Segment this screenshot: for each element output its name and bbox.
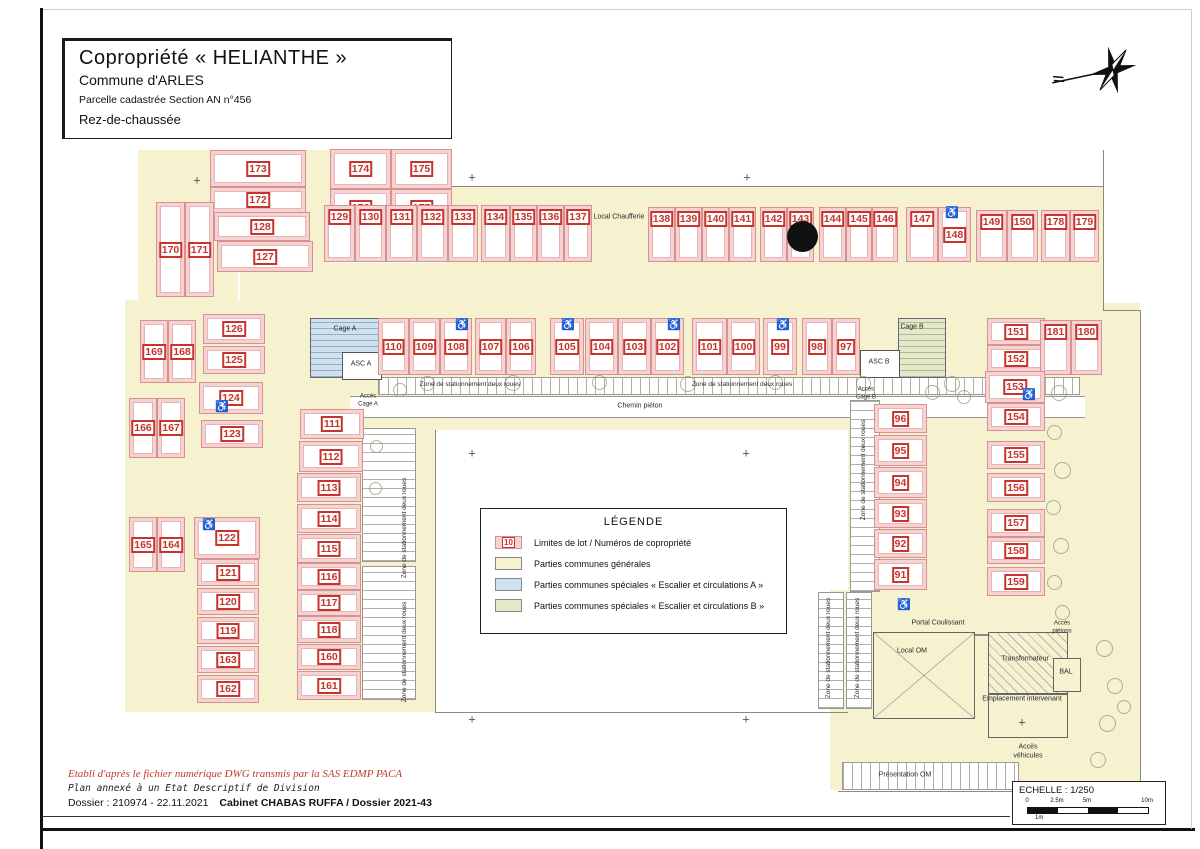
tree-symbol bbox=[1090, 752, 1106, 768]
lot-number-107: 107 bbox=[479, 339, 503, 355]
lot-number-148: 148 bbox=[943, 227, 967, 243]
lot-127: 127 bbox=[217, 241, 313, 272]
lot-146: 146 bbox=[872, 207, 898, 262]
lot-number-119: 119 bbox=[217, 623, 240, 639]
lot-162: 162 bbox=[197, 675, 259, 703]
lot-number-114: 114 bbox=[318, 511, 341, 527]
lot-135: 135 bbox=[510, 205, 537, 262]
lot-number-159: 159 bbox=[1004, 574, 1028, 590]
boundary-line bbox=[445, 186, 1103, 187]
lot-168: 168 bbox=[168, 320, 196, 383]
lot-121: 121 bbox=[197, 559, 259, 586]
tree-symbol bbox=[1047, 425, 1062, 440]
lot-178: 178 bbox=[1041, 210, 1070, 262]
page-title: Copropriété « HELIANTHE » bbox=[79, 47, 451, 70]
lot-number-91: 91 bbox=[892, 567, 910, 583]
tree-symbol bbox=[393, 383, 407, 397]
boundary-line bbox=[435, 430, 436, 712]
lot-124: 124 bbox=[199, 382, 263, 414]
lot-number-113: 113 bbox=[318, 480, 341, 496]
legend-item-general-label: Parties communes générales bbox=[534, 559, 651, 569]
lot-number-104: 104 bbox=[590, 339, 614, 355]
lot-number-164: 164 bbox=[159, 537, 183, 553]
lot-number-174: 174 bbox=[349, 161, 373, 177]
lot-number-133: 133 bbox=[451, 209, 475, 225]
lot-number-140: 140 bbox=[704, 211, 728, 227]
wheelchair-icon: ♿ bbox=[667, 320, 681, 331]
scale-bar bbox=[1027, 807, 1149, 814]
lot-number-120: 120 bbox=[216, 594, 240, 610]
lot-118: 118 bbox=[297, 616, 361, 643]
plan-label: Accès piétons bbox=[1052, 621, 1071, 636]
lot-number-92: 92 bbox=[892, 536, 910, 552]
lot-number-121: 121 bbox=[216, 565, 240, 581]
legend-item-lot: 10 Limites de lot / Numéros de coproprié… bbox=[495, 536, 786, 549]
lot-169: 169 bbox=[140, 320, 168, 383]
stair-a-swatch bbox=[495, 578, 522, 591]
lot-152: 152 bbox=[987, 345, 1045, 372]
lot-number-154: 154 bbox=[1004, 409, 1028, 425]
lot-137: 137 bbox=[564, 205, 592, 262]
lot-172: 172 bbox=[210, 187, 306, 213]
lot-136: 136 bbox=[537, 205, 564, 262]
lot-number-122: 122 bbox=[215, 530, 239, 546]
lot-117: 117 bbox=[297, 590, 361, 616]
plan-label: Présentation OM bbox=[879, 772, 932, 781]
lot-number-138: 138 bbox=[650, 211, 674, 227]
lot-101: 101 bbox=[692, 318, 727, 375]
lot-159: 159 bbox=[987, 567, 1045, 596]
lot-number-94: 94 bbox=[892, 475, 910, 491]
lot-swatch-number: 10 bbox=[502, 537, 515, 548]
plan-label: Zone de stationnement deux roues bbox=[401, 602, 409, 702]
lot-number-99: 99 bbox=[771, 339, 789, 355]
compass-rose-icon bbox=[1045, 40, 1155, 98]
lot-96: 96 bbox=[874, 404, 927, 433]
lot-number-155: 155 bbox=[1004, 447, 1028, 463]
lot-140: 140 bbox=[702, 207, 729, 262]
lot-128: 128 bbox=[214, 212, 310, 241]
lot-109: 109 bbox=[409, 318, 440, 375]
lot-145: 145 bbox=[846, 207, 872, 262]
lot-number-102: 102 bbox=[656, 339, 680, 355]
lot-125: 125 bbox=[203, 346, 265, 374]
lot-number-175: 175 bbox=[410, 161, 434, 177]
wheelchair-icon: ♿ bbox=[215, 402, 229, 413]
lot-number-98: 98 bbox=[808, 339, 826, 355]
boundary-line bbox=[435, 712, 848, 713]
lot-number-145: 145 bbox=[847, 211, 871, 227]
lot-142: 142 bbox=[760, 207, 787, 262]
lot-number-109: 109 bbox=[413, 339, 437, 355]
wheelchair-icon: ♿ bbox=[945, 208, 959, 219]
lot-number-178: 178 bbox=[1044, 214, 1068, 230]
lot-107: 107 bbox=[475, 318, 506, 375]
legend-title: LÉGENDE bbox=[481, 516, 786, 528]
lot-number-103: 103 bbox=[623, 339, 647, 355]
plan-label: Cage A bbox=[334, 326, 357, 335]
plan-label: Accès Cage A bbox=[358, 394, 378, 409]
wheelchair-icon: ♿ bbox=[561, 320, 575, 331]
lot-98: 98 bbox=[802, 318, 832, 375]
lot-number-162: 162 bbox=[216, 681, 240, 697]
lot-120: 120 bbox=[197, 588, 259, 615]
tree-symbol bbox=[1099, 715, 1116, 732]
lot-181: 181 bbox=[1040, 320, 1071, 375]
lot-134: 134 bbox=[481, 205, 510, 262]
lot-number-127: 127 bbox=[253, 249, 277, 265]
tree-symbol bbox=[1051, 385, 1067, 401]
tree-symbol bbox=[944, 376, 960, 392]
lot-number-180: 180 bbox=[1075, 324, 1099, 340]
lot-165: 165 bbox=[129, 517, 157, 572]
plan-label: Emplacement intervenant bbox=[982, 696, 1061, 705]
lot-174: 174 bbox=[330, 149, 391, 189]
lot-151: 151 bbox=[987, 318, 1045, 345]
tree-symbol bbox=[957, 390, 971, 404]
lot-number-134: 134 bbox=[484, 209, 508, 225]
boundary-line bbox=[1103, 310, 1140, 311]
lot-154: 154 bbox=[987, 403, 1045, 431]
footer-source-note: Etabli d'après le fichier numérique DWG … bbox=[68, 768, 432, 780]
survey-cross-mark: + bbox=[468, 170, 476, 185]
lot-94: 94 bbox=[874, 467, 927, 498]
lot-number-116: 116 bbox=[318, 569, 341, 585]
footer-dossier: Dossier : 210974 - 22.11.2021 Cabinet CH… bbox=[68, 797, 432, 809]
lot-number-130: 130 bbox=[359, 209, 383, 225]
lot-number-158: 158 bbox=[1004, 543, 1028, 559]
lot-167: 167 bbox=[157, 398, 185, 458]
legend-item-stair-b: Parties communes spéciales « Escalier et… bbox=[495, 599, 786, 612]
lot-153: 153 bbox=[985, 371, 1045, 403]
plan-label: Accès Cage B bbox=[856, 387, 876, 402]
lot-number-160: 160 bbox=[317, 649, 341, 665]
lot-number-144: 144 bbox=[821, 211, 845, 227]
lot-number-169: 169 bbox=[142, 344, 166, 360]
lot-175: 175 bbox=[391, 149, 452, 189]
lot-131: 131 bbox=[386, 205, 417, 262]
lot-number-93: 93 bbox=[892, 506, 910, 522]
wheelchair-icon: ♿ bbox=[776, 320, 790, 331]
plan-label: Accès véhicules bbox=[1013, 743, 1042, 761]
lot-number-171: 171 bbox=[188, 242, 212, 258]
plan-label: Transformateur bbox=[1001, 656, 1049, 665]
lot-number-166: 166 bbox=[131, 420, 155, 436]
facility-box bbox=[873, 632, 975, 719]
lot-number-125: 125 bbox=[222, 352, 246, 368]
lot-number-115: 115 bbox=[318, 541, 341, 557]
lot-104: 104 bbox=[585, 318, 618, 375]
commune: Commune d'ARLES bbox=[79, 72, 451, 88]
plan-label: Zone de stationnement deux roues bbox=[420, 381, 520, 389]
lot-number-156: 156 bbox=[1004, 480, 1028, 496]
lot-number-139: 139 bbox=[677, 211, 701, 227]
scale-tick-0: 0 bbox=[1025, 798, 1028, 804]
lot-95: 95 bbox=[874, 435, 927, 466]
lot-170: 170 bbox=[156, 202, 185, 297]
lot-160: 160 bbox=[297, 644, 361, 670]
lot-number-168: 168 bbox=[170, 344, 194, 360]
lot-number-105: 105 bbox=[555, 339, 579, 355]
lot-116: 116 bbox=[297, 563, 361, 590]
scale-label: ECHELLE : 1/250 bbox=[1019, 785, 1165, 796]
lot-97: 97 bbox=[832, 318, 860, 375]
lot-number-111: 111 bbox=[321, 416, 343, 432]
lot-115: 115 bbox=[297, 534, 361, 563]
level-label: Rez-de-chaussée bbox=[79, 112, 451, 127]
plan-label: Zone de stationnement deux roues bbox=[825, 598, 833, 698]
survey-cross-mark: + bbox=[468, 712, 476, 727]
lot-166: 166 bbox=[129, 398, 157, 458]
lot-number-179: 179 bbox=[1073, 214, 1097, 230]
legend-item-stair-a-label: Parties communes spéciales « Escalier et… bbox=[534, 580, 763, 590]
plan-label: ASC B bbox=[868, 359, 889, 368]
legend-item-lot-label: Limites de lot / Numéros de copropriété bbox=[534, 538, 691, 548]
general-swatch bbox=[495, 557, 522, 570]
lot-114: 114 bbox=[297, 504, 361, 533]
scale-tick-2-5m: 2.5m bbox=[1050, 798, 1063, 804]
lot-swatch: 10 bbox=[495, 536, 522, 549]
survey-cross-mark: + bbox=[743, 170, 751, 185]
parcel-ref: Parcelle cadastrée Section AN n°456 bbox=[79, 94, 451, 106]
lot-112: 112 bbox=[299, 441, 363, 472]
lot-126: 126 bbox=[203, 314, 265, 344]
scale-tick-10m: 10m bbox=[1141, 798, 1153, 804]
plan-label: Chemin piéton bbox=[617, 403, 662, 412]
lot-number-165: 165 bbox=[131, 537, 155, 553]
lot-156: 156 bbox=[987, 473, 1045, 502]
lot-91: 91 bbox=[874, 559, 927, 590]
lot-119: 119 bbox=[197, 617, 259, 644]
lot-number-146: 146 bbox=[873, 211, 897, 227]
tree-symbol bbox=[370, 440, 383, 453]
lot-179: 179 bbox=[1070, 210, 1099, 262]
tree-symbol bbox=[1053, 538, 1069, 554]
lot-103: 103 bbox=[618, 318, 651, 375]
lot-132: 132 bbox=[417, 205, 448, 262]
lot-number-150: 150 bbox=[1011, 214, 1035, 230]
wheelchair-icon: ♿ bbox=[1022, 390, 1036, 401]
stair-b-swatch bbox=[495, 599, 522, 612]
lot-163: 163 bbox=[197, 646, 259, 673]
lot-number-101: 101 bbox=[698, 339, 722, 355]
lot-number-161: 161 bbox=[317, 678, 341, 694]
lot-number-151: 151 bbox=[1004, 324, 1028, 340]
survey-cross-mark: + bbox=[742, 446, 750, 461]
tree-symbol bbox=[1096, 640, 1113, 657]
legend-item-stair-a: Parties communes spéciales « Escalier et… bbox=[495, 578, 786, 591]
scale-box: ECHELLE : 1/250 0 2.5m 5m 10m 1m bbox=[1012, 781, 1166, 825]
footer-cabinet: Cabinet CHABAS RUFFA / Dossier 2021-43 bbox=[219, 797, 432, 809]
scale-sub-label: 1m bbox=[1035, 815, 1043, 821]
lot-133: 133 bbox=[448, 205, 478, 262]
plan-label: BAL bbox=[1059, 669, 1072, 678]
plan-label: Local OM bbox=[897, 648, 927, 657]
lot-number-152: 152 bbox=[1004, 351, 1028, 367]
lot-130: 130 bbox=[355, 205, 386, 262]
legend: LÉGENDE 10 Limites de lot / Numéros de c… bbox=[480, 508, 787, 634]
wheelchair-icon: ♿ bbox=[455, 320, 469, 331]
lot-93: 93 bbox=[874, 499, 927, 528]
lot-number-142: 142 bbox=[762, 211, 786, 227]
lot-144: 144 bbox=[819, 207, 846, 262]
boundary-line bbox=[1140, 310, 1141, 792]
plan-label: ASC A bbox=[351, 361, 372, 370]
lot-number-95: 95 bbox=[892, 443, 910, 459]
lot-number-135: 135 bbox=[512, 209, 536, 225]
lot-110: 110 bbox=[378, 318, 409, 375]
lot-155: 155 bbox=[987, 441, 1045, 469]
legend-item-stair-b-label: Parties communes spéciales « Escalier et… bbox=[534, 601, 764, 611]
lot-164: 164 bbox=[157, 517, 185, 572]
lot-157: 157 bbox=[987, 509, 1045, 537]
lot-number-123: 123 bbox=[220, 426, 244, 442]
wheelchair-icon: ♿ bbox=[202, 520, 216, 531]
lot-number-170: 170 bbox=[159, 242, 183, 258]
scale-bar-segment bbox=[1028, 808, 1058, 813]
tree-symbol bbox=[1054, 462, 1071, 479]
lot-173: 173 bbox=[210, 150, 306, 187]
lot-129: 129 bbox=[324, 205, 355, 262]
tree-symbol bbox=[925, 385, 940, 400]
plan-label: Zone de stationnement deux roues bbox=[401, 478, 409, 578]
lot-141: 141 bbox=[729, 207, 756, 262]
footer-annex-note: Plan annexé à un Etat Descriptif de Divi… bbox=[68, 783, 432, 794]
lot-147: 147 bbox=[906, 207, 938, 262]
plan-label: Zone de stationnement deux roues bbox=[692, 381, 792, 389]
boundary-line bbox=[1103, 150, 1104, 311]
lot-161: 161 bbox=[297, 671, 361, 700]
footer-block: Etabli d'après le fichier numérique DWG … bbox=[68, 768, 432, 809]
lot-number-157: 157 bbox=[1004, 515, 1028, 531]
plan-label: Zone de stationnement deux roues bbox=[854, 598, 862, 698]
lot-number-126: 126 bbox=[222, 321, 246, 337]
footer-dossier-ref: Dossier : 210974 - 22.11.2021 bbox=[68, 797, 208, 809]
lot-number-173: 173 bbox=[246, 161, 270, 177]
survey-cross-mark: + bbox=[468, 446, 476, 461]
title-block: Copropriété « HELIANTHE » Commune d'ARLE… bbox=[62, 38, 452, 139]
lot-number-118: 118 bbox=[318, 622, 341, 638]
scale-tick-5m: 5m bbox=[1083, 798, 1091, 804]
lot-number-163: 163 bbox=[216, 652, 240, 668]
lot-number-147: 147 bbox=[910, 211, 934, 227]
lot-111: 111 bbox=[300, 409, 364, 439]
lot-number-96: 96 bbox=[892, 411, 910, 427]
plan-label: Zone de stationnement deux roues bbox=[860, 420, 868, 520]
lot-number-149: 149 bbox=[980, 214, 1004, 230]
lot-number-110: 110 bbox=[382, 339, 405, 355]
tree-symbol bbox=[1046, 500, 1061, 515]
lot-number-137: 137 bbox=[566, 209, 590, 225]
lot-number-141: 141 bbox=[731, 211, 755, 227]
lot-number-167: 167 bbox=[159, 420, 183, 436]
wheelchair-icon: ♿ bbox=[897, 600, 911, 611]
lot-number-172: 172 bbox=[246, 192, 270, 208]
black-dot-marker bbox=[787, 221, 818, 252]
scale-bar-segment bbox=[1088, 808, 1118, 813]
tree-symbol bbox=[1047, 575, 1062, 590]
plan-label: Cage B bbox=[900, 324, 923, 333]
lot-number-108: 108 bbox=[444, 339, 468, 355]
lot-139: 139 bbox=[675, 207, 702, 262]
tree-symbol bbox=[1055, 605, 1070, 620]
plan-label: Local Chaufferie bbox=[594, 214, 645, 223]
lot-number-181: 181 bbox=[1044, 324, 1068, 340]
lot-number-128: 128 bbox=[250, 219, 274, 235]
survey-cross-mark: + bbox=[193, 173, 201, 188]
lot-171: 171 bbox=[185, 202, 214, 297]
lot-123: 123 bbox=[201, 420, 263, 448]
tree-symbol bbox=[369, 482, 382, 495]
pedestrian-path-band bbox=[350, 396, 1085, 418]
lot-100: 100 bbox=[727, 318, 760, 375]
lot-number-106: 106 bbox=[509, 339, 533, 355]
lot-180: 180 bbox=[1071, 320, 1102, 375]
tree-symbol bbox=[592, 375, 607, 390]
survey-cross-mark: + bbox=[742, 712, 750, 727]
plan-label: Portal Coulissant bbox=[912, 620, 965, 629]
lot-number-131: 131 bbox=[390, 209, 414, 225]
lot-106: 106 bbox=[506, 318, 536, 375]
tree-symbol bbox=[1107, 678, 1123, 694]
scale-ticks: 0 2.5m 5m 10m bbox=[1027, 798, 1157, 806]
lot-number-129: 129 bbox=[328, 209, 352, 225]
lot-149: 149 bbox=[976, 210, 1007, 262]
lot-number-100: 100 bbox=[732, 339, 756, 355]
lot-number-136: 136 bbox=[539, 209, 563, 225]
lot-158: 158 bbox=[987, 537, 1045, 564]
lot-number-112: 112 bbox=[320, 449, 343, 465]
lot-113: 113 bbox=[297, 473, 361, 502]
tree-symbol bbox=[1117, 700, 1131, 714]
lot-92: 92 bbox=[874, 529, 927, 558]
lot-number-132: 132 bbox=[421, 209, 445, 225]
lot-number-97: 97 bbox=[837, 339, 855, 355]
legend-item-general: Parties communes générales bbox=[495, 557, 786, 570]
lot-150: 150 bbox=[1007, 210, 1038, 262]
plan-sheet: Copropriété « HELIANTHE » Commune d'ARLE… bbox=[0, 0, 1200, 849]
survey-cross-mark: + bbox=[1018, 715, 1026, 730]
lot-number-117: 117 bbox=[318, 595, 341, 611]
lot-138: 138 bbox=[648, 207, 675, 262]
